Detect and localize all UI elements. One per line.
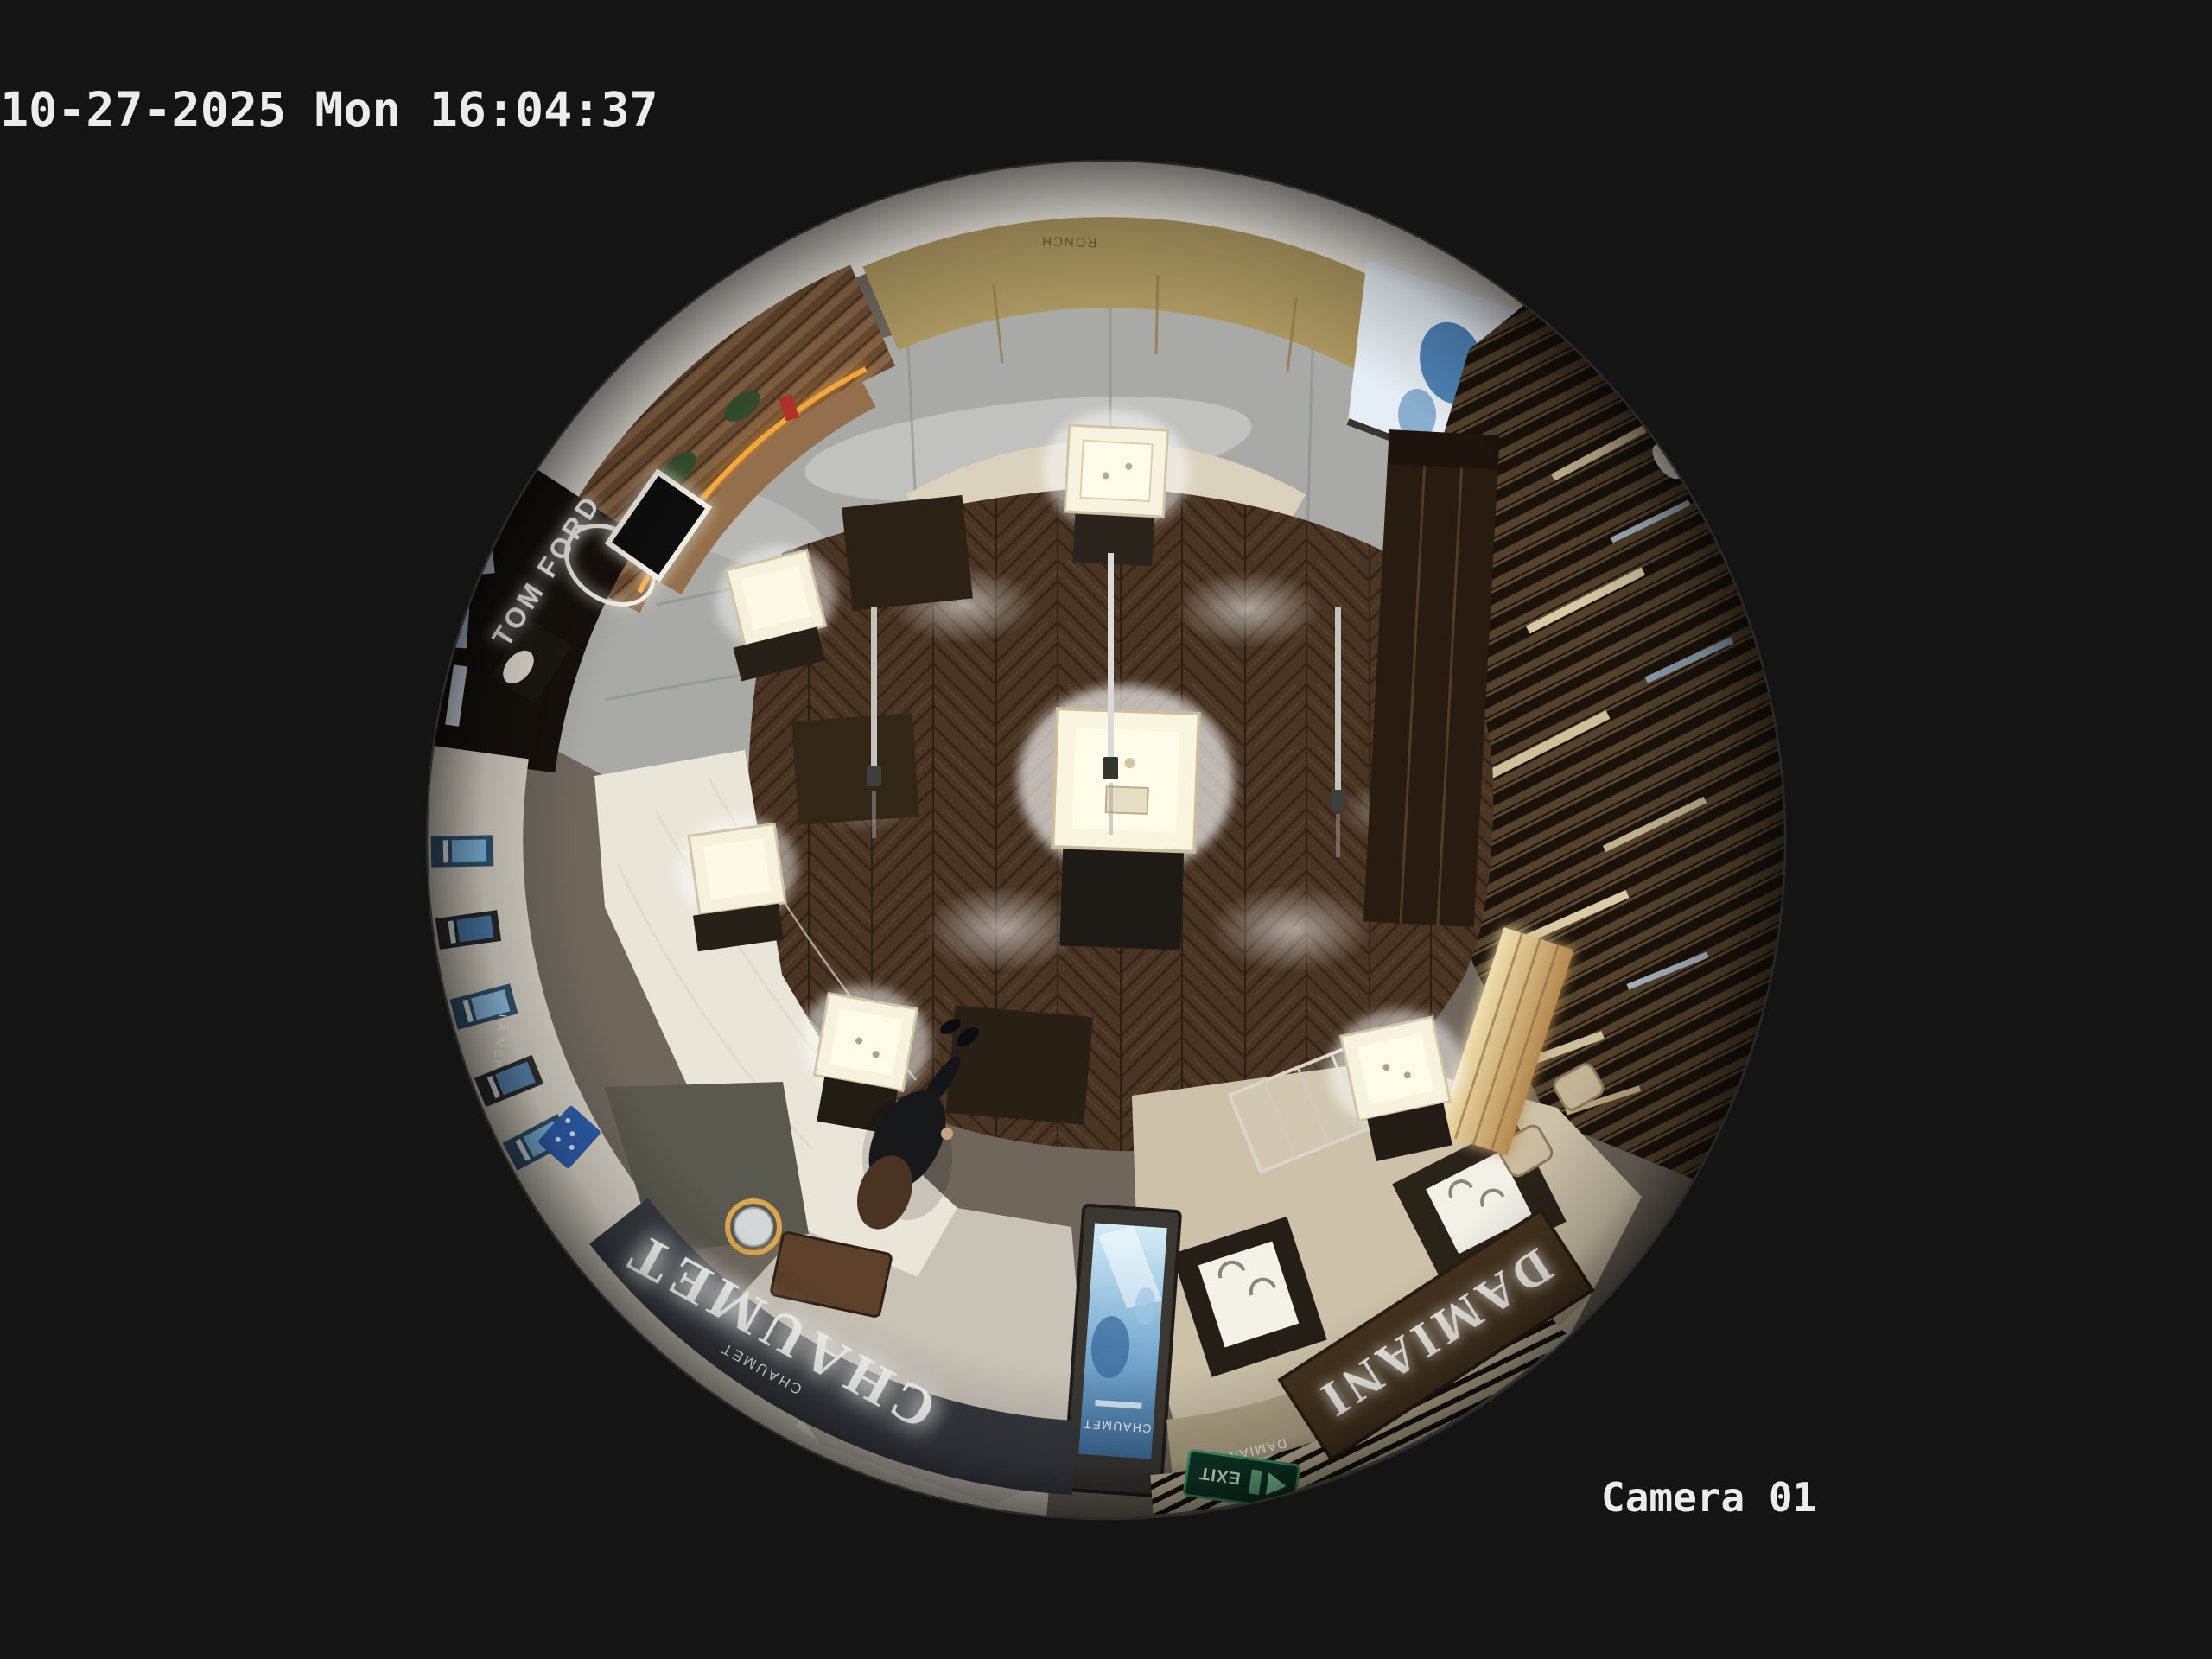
cctv-frame: RONCH TOM FORD	[0, 0, 2212, 1659]
fisheye-vignette	[427, 161, 1785, 1519]
fisheye-view: RONCH TOM FORD	[0, 0, 2212, 1659]
osd-camera-label: Camera 01	[1601, 1478, 1816, 1517]
osd-timestamp: 10-27-2025 Mon 16:04:37	[0, 86, 658, 134]
